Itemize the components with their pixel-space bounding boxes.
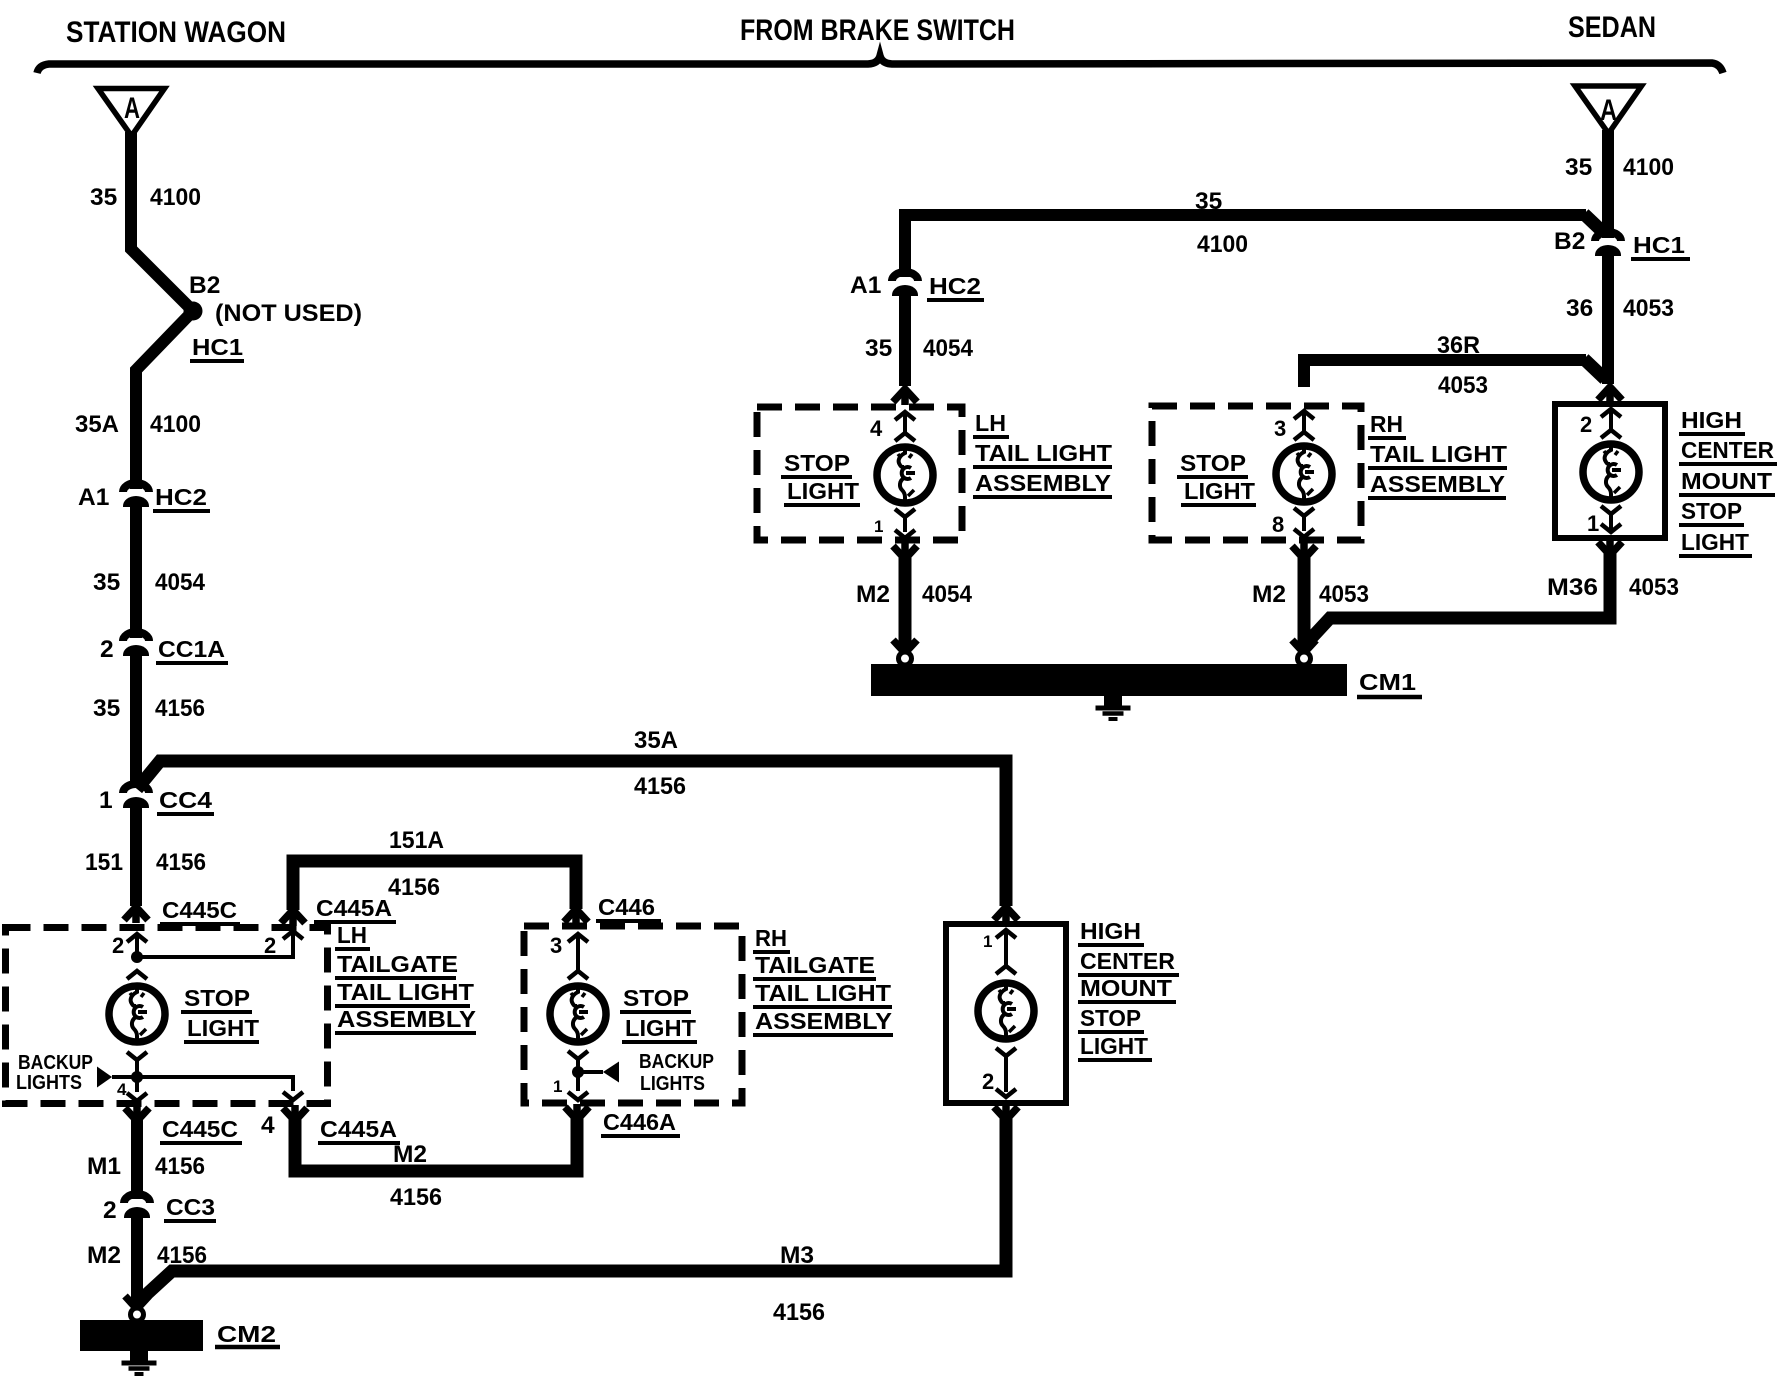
svg-text:LIGHT: LIGHT	[1184, 478, 1255, 504]
svg-text:BACKUP: BACKUP	[639, 1050, 714, 1073]
svg-text:35: 35	[1195, 188, 1222, 215]
svg-text:M2: M2	[856, 581, 890, 608]
svg-text:LIGHT: LIGHT	[787, 478, 859, 504]
svg-text:2: 2	[264, 933, 276, 958]
svg-text:SEDAN: SEDAN	[1568, 11, 1656, 44]
svg-text:C445A: C445A	[316, 895, 392, 921]
svg-text:CC1A: CC1A	[158, 636, 225, 662]
svg-text:TAIL LIGHT: TAIL LIGHT	[975, 440, 1112, 466]
svg-text:4054: 4054	[922, 581, 972, 608]
svg-text:M2: M2	[87, 1242, 121, 1269]
svg-text:35: 35	[93, 569, 120, 596]
svg-text:CC4: CC4	[159, 787, 212, 813]
svg-text:35: 35	[865, 335, 892, 362]
svg-text:HC1: HC1	[1633, 232, 1685, 258]
svg-text:A1: A1	[850, 272, 881, 299]
svg-text:4156: 4156	[773, 1299, 825, 1326]
svg-text:RH: RH	[755, 925, 787, 951]
svg-text:RH: RH	[1370, 411, 1403, 437]
svg-text:36: 36	[1566, 295, 1593, 322]
svg-text:4100: 4100	[150, 411, 201, 438]
svg-text:M2: M2	[393, 1141, 427, 1168]
svg-text:35: 35	[1565, 154, 1592, 181]
svg-text:C446A: C446A	[603, 1109, 676, 1135]
svg-text:HC1: HC1	[192, 334, 243, 360]
svg-text:2: 2	[100, 636, 114, 663]
svg-text:4054: 4054	[923, 335, 973, 362]
svg-text:4053: 4053	[1623, 295, 1674, 322]
svg-text:STOP: STOP	[784, 450, 850, 476]
svg-text:C445C: C445C	[162, 1116, 238, 1142]
svg-text:35: 35	[93, 695, 120, 722]
svg-text:1: 1	[874, 517, 883, 536]
svg-text:4100: 4100	[1197, 231, 1248, 258]
svg-text:A1: A1	[78, 484, 109, 511]
svg-text:TAIL LIGHT: TAIL LIGHT	[1370, 441, 1507, 467]
svg-text:4100: 4100	[150, 184, 201, 211]
svg-text:M36: M36	[1547, 574, 1598, 601]
svg-text:1: 1	[99, 787, 113, 814]
svg-text:2: 2	[1580, 412, 1592, 437]
svg-text:CC3: CC3	[166, 1194, 215, 1220]
svg-text:MOUNT: MOUNT	[1681, 468, 1772, 494]
svg-text:B2: B2	[189, 272, 220, 299]
svg-text:LIGHTS: LIGHTS	[640, 1072, 705, 1095]
svg-text:4054: 4054	[155, 569, 205, 596]
svg-text:2: 2	[103, 1197, 117, 1224]
svg-text:LH: LH	[337, 922, 367, 948]
svg-text:LIGHT: LIGHT	[1681, 529, 1749, 555]
svg-text:35A: 35A	[634, 727, 678, 754]
svg-text:TAILGATE: TAILGATE	[755, 952, 875, 978]
svg-text:CM1: CM1	[1359, 669, 1416, 695]
svg-text:4053: 4053	[1438, 372, 1488, 399]
svg-text:A: A	[124, 92, 140, 125]
svg-text:C445A: C445A	[320, 1116, 397, 1142]
svg-text:A: A	[1600, 94, 1617, 127]
svg-text:HIGH: HIGH	[1681, 407, 1742, 433]
svg-text:STOP: STOP	[184, 985, 250, 1011]
svg-text:ASSEMBLY: ASSEMBLY	[337, 1006, 476, 1032]
svg-text:ASSEMBLY: ASSEMBLY	[1370, 471, 1505, 497]
svg-text:4: 4	[117, 1080, 127, 1099]
svg-text:HC2: HC2	[929, 273, 981, 299]
svg-text:TAILGATE: TAILGATE	[337, 951, 458, 977]
svg-text:35: 35	[90, 184, 117, 211]
svg-text:STOP: STOP	[1180, 450, 1246, 476]
svg-text:4053: 4053	[1629, 574, 1679, 601]
svg-text:4156: 4156	[156, 849, 206, 876]
svg-text:(NOT USED): (NOT USED)	[215, 300, 362, 327]
svg-text:4156: 4156	[388, 874, 440, 901]
svg-text:1: 1	[983, 932, 992, 951]
svg-text:4156: 4156	[155, 695, 205, 722]
svg-text:LIGHTS: LIGHTS	[16, 1071, 82, 1094]
svg-text:4156: 4156	[390, 1184, 442, 1211]
svg-text:STOP: STOP	[1080, 1005, 1141, 1031]
svg-text:4: 4	[870, 416, 883, 441]
svg-text:CENTER: CENTER	[1681, 437, 1774, 463]
svg-text:HIGH: HIGH	[1080, 918, 1141, 944]
svg-text:LIGHT: LIGHT	[187, 1015, 259, 1041]
svg-text:LIGHT: LIGHT	[625, 1015, 696, 1041]
svg-text:4156: 4156	[634, 773, 686, 800]
svg-text:CM2: CM2	[217, 1321, 276, 1347]
svg-text:C446: C446	[598, 894, 655, 920]
svg-text:36R: 36R	[1437, 332, 1480, 359]
svg-text:B2: B2	[1554, 228, 1585, 255]
svg-text:STATION WAGON: STATION WAGON	[66, 16, 286, 49]
svg-text:ASSEMBLY: ASSEMBLY	[975, 470, 1111, 496]
svg-text:1: 1	[553, 1077, 562, 1096]
svg-text:2: 2	[112, 933, 124, 958]
svg-text:LH: LH	[975, 410, 1006, 436]
svg-text:8: 8	[1272, 512, 1284, 537]
svg-text:C445C: C445C	[162, 897, 237, 923]
svg-text:ASSEMBLY: ASSEMBLY	[755, 1008, 892, 1034]
svg-text:4: 4	[261, 1112, 275, 1139]
svg-text:151: 151	[85, 849, 123, 876]
svg-text:MOUNT: MOUNT	[1080, 975, 1172, 1001]
svg-text:CENTER: CENTER	[1080, 948, 1175, 974]
svg-text:35A: 35A	[75, 411, 119, 438]
svg-text:151A: 151A	[389, 827, 444, 854]
svg-text:LIGHT: LIGHT	[1080, 1033, 1148, 1059]
svg-text:1: 1	[1587, 511, 1599, 536]
svg-text:STOP: STOP	[1681, 498, 1742, 524]
svg-text:3: 3	[1274, 416, 1286, 441]
svg-text:3: 3	[550, 933, 562, 958]
svg-text:4100: 4100	[1623, 154, 1674, 181]
svg-text:4156: 4156	[155, 1153, 205, 1180]
svg-text:M2: M2	[1252, 581, 1286, 608]
svg-text:HC2: HC2	[155, 484, 207, 510]
svg-text:FROM BRAKE SWITCH: FROM BRAKE SWITCH	[740, 14, 1015, 47]
svg-text:2: 2	[982, 1069, 994, 1094]
svg-text:M3: M3	[780, 1242, 814, 1269]
svg-text:M1: M1	[87, 1153, 121, 1180]
svg-text:TAIL LIGHT: TAIL LIGHT	[337, 979, 474, 1005]
svg-text:4053: 4053	[1319, 581, 1369, 608]
svg-text:TAIL LIGHT: TAIL LIGHT	[755, 980, 891, 1006]
svg-text:STOP: STOP	[623, 985, 689, 1011]
